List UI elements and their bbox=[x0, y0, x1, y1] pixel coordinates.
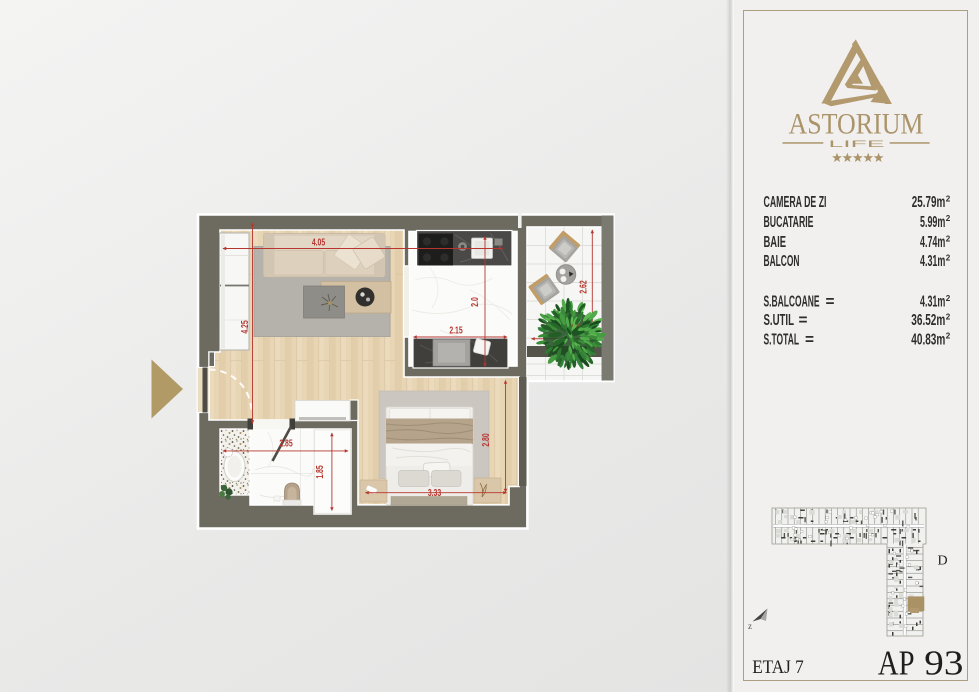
svg-text:=: = bbox=[826, 294, 835, 311]
svg-text:ASTORIUM: ASTORIUM bbox=[789, 107, 924, 140]
svg-text:S.UTIL: S.UTIL bbox=[764, 312, 795, 329]
svg-text:=: = bbox=[805, 331, 814, 348]
svg-text:2.0: 2.0 bbox=[469, 297, 481, 307]
svg-text:AP: AP bbox=[878, 644, 915, 683]
svg-text:4.25: 4.25 bbox=[239, 320, 251, 334]
svg-text:ETAJ 7: ETAJ 7 bbox=[752, 657, 804, 678]
svg-text:93: 93 bbox=[924, 644, 963, 683]
svg-text:4.74m: 4.74m bbox=[920, 234, 945, 251]
svg-text:S.BALCOANE: S.BALCOANE bbox=[764, 294, 820, 311]
svg-text:4.05: 4.05 bbox=[312, 236, 326, 248]
svg-text:=: = bbox=[799, 312, 808, 329]
svg-text:BUCATARIE: BUCATARIE bbox=[764, 214, 814, 231]
svg-text:5.99m: 5.99m bbox=[920, 214, 945, 231]
svg-text:2: 2 bbox=[946, 331, 951, 341]
svg-text:2: 2 bbox=[946, 194, 951, 204]
svg-text:BALCON: BALCON bbox=[764, 253, 800, 270]
svg-text:LIFE: LIFE bbox=[829, 139, 885, 150]
svg-text:3.33: 3.33 bbox=[428, 487, 442, 499]
svg-text:2.62: 2.62 bbox=[577, 280, 589, 294]
svg-text:4.31m: 4.31m bbox=[920, 253, 945, 270]
svg-text:2.85: 2.85 bbox=[279, 437, 293, 449]
svg-text:z: z bbox=[748, 621, 752, 631]
svg-text:2.80: 2.80 bbox=[480, 433, 492, 447]
svg-text:4.31m: 4.31m bbox=[920, 294, 945, 311]
svg-text:2: 2 bbox=[946, 233, 951, 243]
svg-text:2: 2 bbox=[946, 311, 951, 321]
svg-text:40.83m: 40.83m bbox=[911, 331, 945, 348]
svg-text:CAMERA DE ZI: CAMERA DE ZI bbox=[764, 194, 827, 211]
svg-text:36.52m: 36.52m bbox=[911, 312, 945, 329]
svg-text:S.TOTAL: S.TOTAL bbox=[764, 331, 800, 348]
svg-text:2.15: 2.15 bbox=[449, 324, 463, 336]
svg-text:2: 2 bbox=[946, 213, 951, 223]
svg-text:D: D bbox=[938, 554, 948, 569]
svg-text:BAIE: BAIE bbox=[764, 234, 787, 251]
svg-text:2: 2 bbox=[946, 253, 951, 263]
svg-text:1.85: 1.85 bbox=[314, 465, 326, 479]
svg-text:2: 2 bbox=[946, 293, 951, 303]
svg-text:25.79m: 25.79m bbox=[912, 194, 946, 211]
